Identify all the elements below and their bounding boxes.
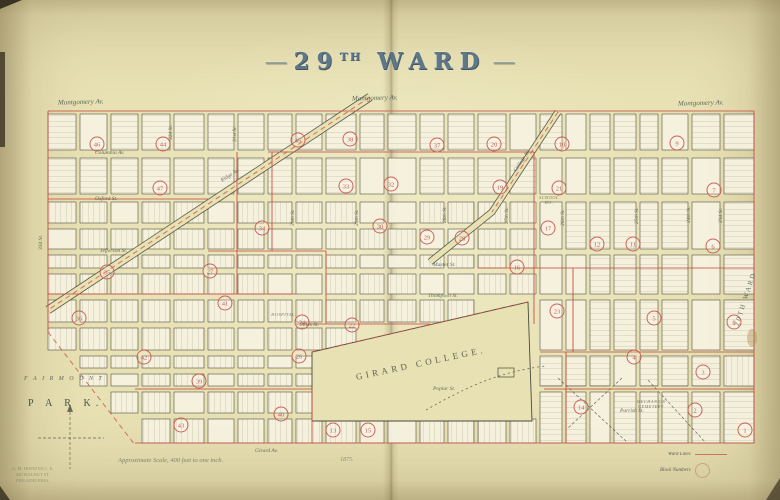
city-block <box>238 300 264 322</box>
city-block <box>724 255 754 294</box>
block-number: 45 <box>295 137 302 144</box>
block-number: 21 <box>556 185 563 192</box>
block-number: 28 <box>459 235 466 242</box>
city-block <box>360 255 384 268</box>
city-block <box>142 419 170 443</box>
city-block <box>388 300 416 322</box>
city-block <box>48 114 76 150</box>
city-block <box>142 328 170 350</box>
city-block <box>614 392 636 443</box>
city-block <box>640 202 658 249</box>
city-block <box>208 392 234 413</box>
block-number: 33 <box>343 183 350 190</box>
compass-north-arrow <box>67 404 73 412</box>
city-block <box>208 229 234 249</box>
block-number: 9 <box>675 140 678 147</box>
city-block <box>80 328 107 350</box>
street-name: 25th St. <box>634 207 640 224</box>
city-block <box>268 274 292 294</box>
legend-ward-line: Ward Lines <box>668 452 727 457</box>
city-block <box>48 229 76 249</box>
city-block <box>478 229 506 249</box>
city-block <box>48 328 76 350</box>
city-block <box>174 255 204 268</box>
city-block <box>724 202 754 249</box>
city-block <box>510 419 536 443</box>
city-block <box>640 114 658 150</box>
city-block <box>48 202 76 223</box>
street-name: Girard Av. <box>255 448 278 454</box>
city-block <box>174 158 204 194</box>
block-number: 15 <box>365 427 372 434</box>
block-number: 34 <box>259 225 266 232</box>
city-block <box>590 114 610 150</box>
city-block <box>238 328 264 350</box>
city-block <box>388 229 416 249</box>
city-block <box>238 419 264 443</box>
city-block <box>142 300 170 322</box>
city-block <box>388 255 416 268</box>
city-block <box>208 374 234 386</box>
city-block <box>268 114 292 150</box>
city-block <box>238 255 264 268</box>
block-number: 1 <box>743 427 746 434</box>
city-block <box>662 158 688 194</box>
block-label: HO. <box>544 200 554 205</box>
city-block <box>174 229 204 249</box>
city-block <box>540 356 562 386</box>
city-block <box>662 300 688 350</box>
city-block <box>510 114 536 150</box>
city-block <box>268 419 292 443</box>
city-block <box>111 114 138 150</box>
city-block <box>360 158 384 194</box>
street-name: 32d St. <box>168 125 174 141</box>
city-block <box>590 255 610 294</box>
block-number: 36 <box>76 315 83 322</box>
city-block <box>566 356 586 386</box>
city-block <box>662 202 688 249</box>
city-block <box>360 274 384 294</box>
city-block <box>296 328 322 350</box>
city-block <box>238 374 264 386</box>
city-block <box>174 328 204 350</box>
city-block <box>614 255 636 294</box>
city-block <box>238 202 264 223</box>
city-block <box>296 229 322 249</box>
city-block <box>174 356 204 368</box>
block-number: 8 <box>732 319 735 326</box>
city-block <box>724 356 754 386</box>
block-number: 13 <box>330 427 337 434</box>
city-block <box>48 255 76 268</box>
city-block <box>566 255 586 294</box>
city-block <box>111 392 138 413</box>
city-block <box>420 419 444 443</box>
city-block <box>80 356 107 368</box>
street-name: Jefferson St. <box>100 247 127 254</box>
city-block <box>692 300 720 350</box>
city-block <box>296 202 322 223</box>
block-number: 19 <box>497 184 504 191</box>
city-block <box>662 356 688 386</box>
block-number: 20 <box>491 141 498 148</box>
city-block <box>268 356 292 368</box>
city-block <box>478 274 506 294</box>
city-block <box>590 356 610 386</box>
city-block <box>238 356 264 368</box>
city-block <box>326 202 356 223</box>
city-block <box>326 229 356 249</box>
city-block <box>80 229 107 249</box>
block-number: 38 <box>347 136 354 143</box>
city-block <box>174 274 204 294</box>
city-block <box>510 274 536 294</box>
city-block <box>48 158 76 194</box>
street-name: 23d St. <box>718 208 724 223</box>
city-block <box>478 419 506 443</box>
atlas-page: 4644453837201094733321921734302928171211… <box>0 0 780 500</box>
ward-line-sample <box>695 454 727 455</box>
block-number: 22 <box>349 322 356 329</box>
street-name: Thompson St. <box>428 293 458 299</box>
city-block <box>420 158 444 194</box>
city-block <box>268 328 292 350</box>
city-block <box>360 300 384 322</box>
block-number: 27 <box>207 268 214 275</box>
city-block <box>614 114 636 150</box>
street-name: 31st St. <box>232 126 238 143</box>
city-block <box>420 300 444 322</box>
city-block <box>208 114 234 150</box>
city-block <box>448 114 474 150</box>
city-block <box>268 300 292 322</box>
street-name: 33d St. <box>38 235 44 251</box>
city-block <box>540 255 562 294</box>
block-number: 10 <box>559 141 566 148</box>
city-block <box>268 374 292 386</box>
street-name: 29th St. <box>354 209 360 226</box>
city-block <box>111 374 138 386</box>
city-block <box>111 202 138 223</box>
block-number: 12 <box>594 241 601 248</box>
block-label: HOSPITAL <box>270 312 295 317</box>
block-number: 40 <box>278 411 285 418</box>
block-number: 44 <box>160 141 167 148</box>
city-block <box>590 158 610 194</box>
city-block <box>174 392 204 413</box>
city-block <box>724 114 754 150</box>
city-block <box>420 274 444 294</box>
city-block <box>268 255 292 268</box>
city-block <box>662 255 688 294</box>
block-number: 42 <box>141 354 148 361</box>
city-block <box>142 374 170 386</box>
city-block <box>326 274 356 294</box>
city-block <box>614 158 636 194</box>
city-block <box>448 274 474 294</box>
city-block <box>566 300 586 350</box>
city-block <box>388 202 416 223</box>
block-number: 5 <box>652 315 655 322</box>
block-number: 39 <box>196 378 203 385</box>
city-block <box>614 300 636 350</box>
block-label: CEMETERY <box>638 404 664 409</box>
block-number: 46 <box>94 141 101 148</box>
city-block <box>724 158 754 194</box>
city-block <box>174 114 204 150</box>
city-block <box>640 158 658 194</box>
city-block <box>208 328 234 350</box>
block-number: 2 <box>693 407 696 414</box>
street-name: 28th St. <box>442 206 448 223</box>
city-block <box>590 300 610 350</box>
legend-block-label: Block Numbers <box>660 468 691 473</box>
map-canvas: 4644453837201094733321921734302928171211… <box>0 0 780 500</box>
block-number: 41 <box>222 300 229 307</box>
legend-block-number: Block Numbers <box>660 463 710 478</box>
city-block <box>80 158 107 194</box>
city-block <box>238 274 264 294</box>
block-number: 17 <box>545 225 552 232</box>
city-block <box>478 255 506 268</box>
street-name: Master St. <box>432 262 456 268</box>
city-block <box>111 229 138 249</box>
block-number-sample-icon <box>695 463 710 478</box>
city-block <box>388 114 416 150</box>
block-number: 16 <box>514 264 521 271</box>
block-number: 29 <box>424 234 431 241</box>
paper-stain <box>747 329 757 347</box>
city-block <box>111 274 138 294</box>
city-block <box>111 300 138 322</box>
city-block <box>142 255 170 268</box>
city-block <box>208 356 234 368</box>
city-block <box>360 114 384 150</box>
city-block <box>388 419 416 443</box>
city-block <box>692 255 720 294</box>
city-block <box>448 419 474 443</box>
street-name: Oxford St. <box>95 195 117 202</box>
block-number: 35 <box>104 269 111 276</box>
block-number: 37 <box>434 142 441 149</box>
street-name: Columbia Av. <box>95 150 124 156</box>
street-name: 26th St. <box>560 209 566 226</box>
city-block <box>80 374 107 386</box>
city-block <box>540 392 562 443</box>
city-block <box>692 392 720 443</box>
city-block <box>111 328 138 350</box>
street-name: 30th St. <box>290 209 296 227</box>
city-block <box>238 114 264 150</box>
street-name: Stiles St. <box>300 322 319 328</box>
city-block <box>142 392 170 413</box>
city-block <box>388 274 416 294</box>
city-block <box>510 202 536 223</box>
city-block <box>510 229 536 249</box>
city-block <box>590 392 610 443</box>
city-block <box>296 255 322 268</box>
city-block <box>296 419 322 443</box>
city-block <box>296 274 322 294</box>
city-block <box>420 202 444 223</box>
block-number: 47 <box>157 185 164 192</box>
city-block <box>566 158 586 194</box>
block-number: 3 <box>701 369 704 376</box>
block-number: 14 <box>578 404 585 411</box>
street-name: Poplar St. <box>432 386 455 392</box>
block-number: 26 <box>296 353 303 360</box>
block-number: 23 <box>554 308 561 315</box>
city-block <box>142 202 170 223</box>
city-block <box>208 419 234 443</box>
street-name: 24th St. <box>685 206 692 223</box>
city-block <box>326 255 356 268</box>
city-block <box>692 114 720 150</box>
city-block <box>238 392 264 413</box>
block-number: 43 <box>178 422 185 429</box>
city-block <box>448 158 474 194</box>
city-block <box>566 202 586 249</box>
legend-ward-label: Ward Lines <box>668 452 691 457</box>
city-block <box>111 158 138 194</box>
city-block <box>566 392 586 443</box>
block-number: 30 <box>377 223 384 230</box>
city-block <box>296 158 322 194</box>
street-name: 27th St. <box>504 207 510 224</box>
city-block <box>111 356 138 368</box>
city-block <box>142 274 170 294</box>
city-block <box>174 300 204 322</box>
city-block <box>448 202 474 223</box>
city-block <box>80 202 107 223</box>
block-number: 11 <box>630 241 636 248</box>
block-number: 32 <box>388 181 395 188</box>
city-block <box>640 255 658 294</box>
